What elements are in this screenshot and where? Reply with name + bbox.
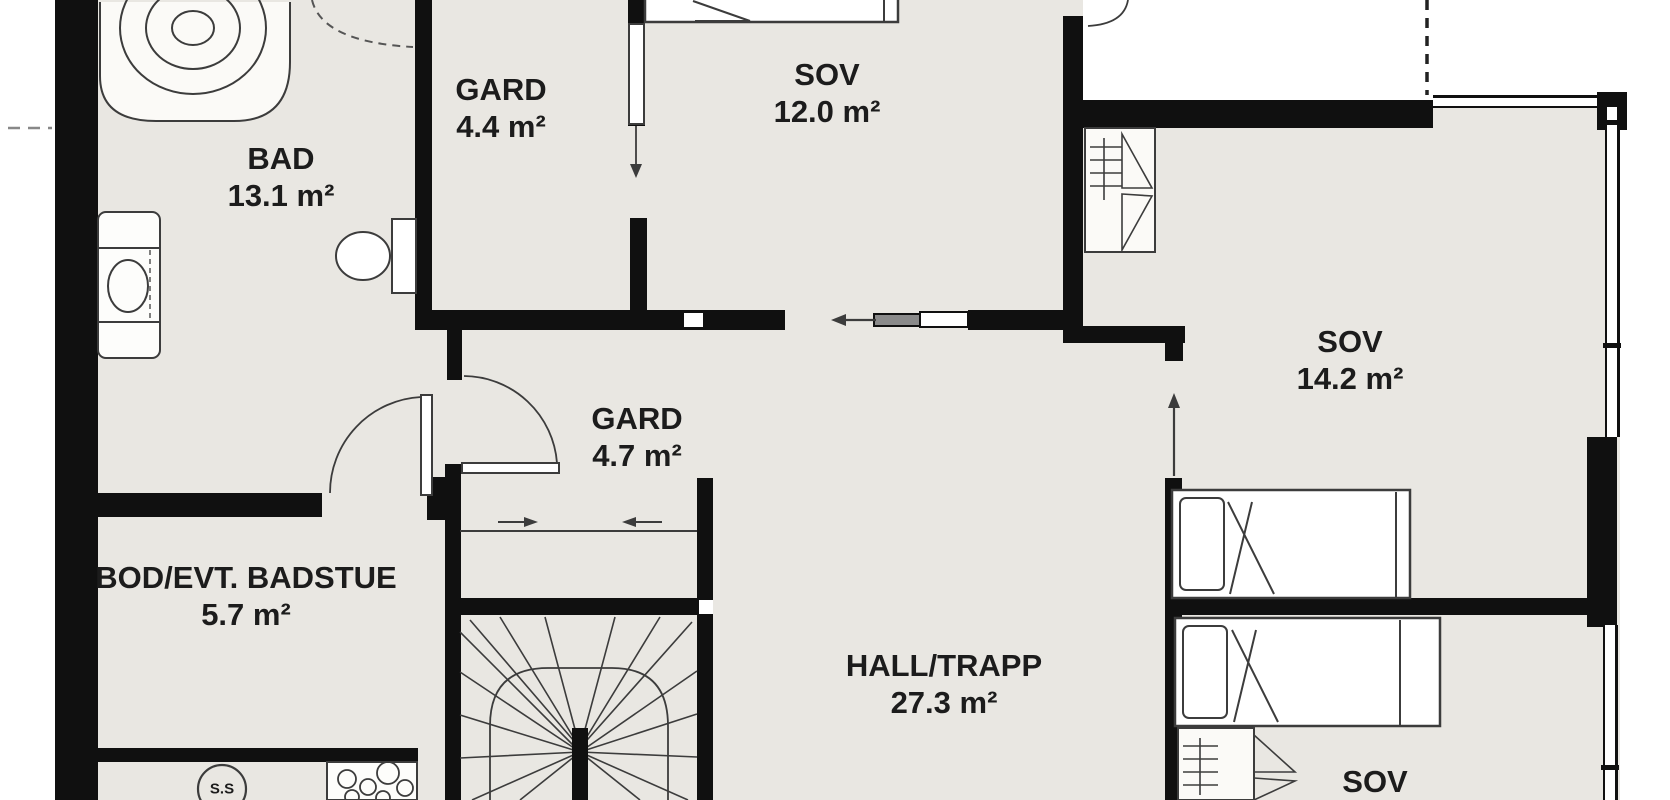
room-label-gard-47: GARD 4.7 m² xyxy=(591,400,682,474)
door-arrow-icon xyxy=(629,24,644,178)
wardrobe-icon xyxy=(1178,728,1295,800)
room-name: BOD/EVT. BADSTUE xyxy=(95,559,396,596)
room-area: 12.0 m² xyxy=(774,93,881,130)
room-area: 13.1 m² xyxy=(228,177,335,214)
room-label-gard-44: GARD 4.4 m² xyxy=(455,71,546,145)
room-label-hall-trapp: HALL/TRAPP 27.3 m² xyxy=(846,647,1042,721)
floor-plan: BAD 13.1 m² GARD 4.4 m² SOV 12.0 m² SOV … xyxy=(0,0,1670,800)
door-arc-icon xyxy=(1088,0,1128,26)
bed-icon xyxy=(1175,618,1440,726)
room-area: 14.2 m² xyxy=(1297,360,1404,397)
room-name: GARD xyxy=(591,400,682,437)
room-area: 27.3 m² xyxy=(846,684,1042,721)
room-name: SOV xyxy=(1297,323,1404,360)
room-name: HALL/TRAPP xyxy=(846,647,1042,684)
room-label-sov-120: SOV 12.0 m² xyxy=(774,56,881,130)
sauna-stove-label: S.S xyxy=(210,781,234,798)
room-name: BAD xyxy=(228,140,335,177)
room-area: 4.7 m² xyxy=(591,437,682,474)
room-label-bad: BAD 13.1 m² xyxy=(228,140,335,214)
wardrobe-icon xyxy=(1085,128,1155,252)
bathtub-icon xyxy=(100,0,290,121)
bed-icon xyxy=(645,0,898,22)
sink-icon xyxy=(98,212,160,358)
room-area: 4.4 m² xyxy=(455,108,546,145)
opening-arrow-icon xyxy=(1168,393,1180,476)
opening-arrow-icon xyxy=(831,314,876,326)
room-name: SOV xyxy=(774,56,881,93)
room-name: GARD xyxy=(455,71,546,108)
room-area: 5.7 m² xyxy=(95,596,396,633)
sliding-doors-icon xyxy=(460,517,697,531)
bed-icon xyxy=(1172,490,1410,598)
toilet-icon xyxy=(336,219,416,293)
stairs-icon xyxy=(460,617,697,800)
room-label-bod: BOD/EVT. BADSTUE 5.7 m² xyxy=(95,559,396,633)
door-swing-icon xyxy=(330,395,432,495)
sauna-stones-icon xyxy=(327,762,417,800)
room-label-sov-142: SOV 14.2 m² xyxy=(1297,323,1404,397)
room-name: SOV xyxy=(1342,763,1407,800)
shower-screen-arc xyxy=(312,0,413,47)
door-swing-icon xyxy=(462,376,559,473)
room-label-sov-bottom: SOV xyxy=(1342,763,1407,800)
